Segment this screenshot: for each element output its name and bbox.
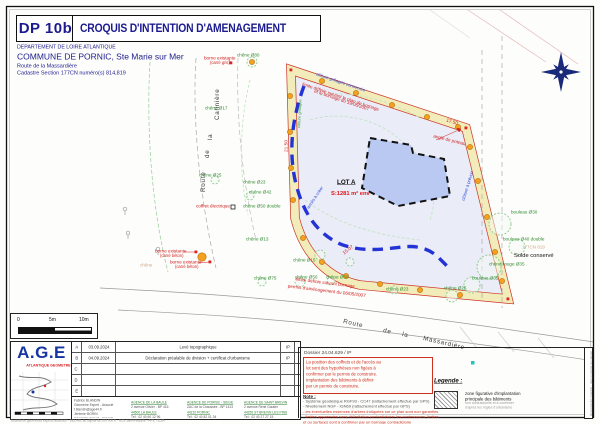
date-text: Dressé le : 04-09-2024 [590,22,600,32]
legend-zone-sub2: d'après les règles d'urbanisme [465,406,550,410]
electric-cabinet-symbol [231,205,235,209]
cadastre-line: Cadastre Section 177CN numéro(s) 814,819 [17,70,217,77]
scale-date-block: Echelle 1/250e Dressé le : 04-09-2024 [590,12,600,33]
department-line: DEPARTEMENT DE LOIRE ATLANTIQUE [17,44,217,51]
legend-hatch-swatch [434,391,458,409]
page-title: CROQUIS D'INTENTION D'AMENAGEMENT [80,23,286,35]
scale-text: Echelle 1/250e [590,12,600,22]
dossier-reference: Dossier 24.04.629 / IP [304,350,454,356]
legend-zone-text: zone figurative d'implantation principal… [465,391,550,410]
plan-sheet: chêne Ø80borne existante(carré gris)chên… [0,0,600,424]
contact-column: AGENCE DE SAINT BREVIN2 avenue René Gaut… [243,398,300,418]
small-tree-symbols [123,207,160,255]
street-line: Route de la Massardière [17,63,217,70]
legend: Legende : zone figurative d'implantation… [434,377,600,424]
revision-row: A03.09.2024Levé topographiqueIP [72,342,300,353]
company-subtitle: ATLANTIQUE GEOMETRES EXPERTS [26,363,57,368]
company-logo: A.G.E [11,343,72,363]
road-caliniere-edges [149,58,256,272]
revision-row: C [72,364,300,375]
contact-column: AGENCE DE PORNIC - SIEGEZAC de la Chauss… [186,398,243,418]
legal-line: Société de géomètres experts associés - … [11,419,311,423]
bottom-separator [298,347,592,348]
commune-line: COMMUNE DE PORNIC, Ste Marie sur Mer [17,52,217,63]
doc-title-box: CROQUIS D'INTENTION D'AMENAGEMENT [72,15,321,42]
legend-title: Legende : [434,377,600,384]
scale-bar-graphic [18,327,92,334]
graphic-scale-bar: 0 5m 10m [10,313,98,339]
revision-row: B04.09.2024Déclaration préalable de divi… [72,353,300,364]
red-notice-box: La position des coffrets et de l'accès a… [303,357,433,394]
doc-code: DP 10b [19,20,73,37]
scale-tick-10m: 10m [79,317,89,323]
scale-tick-0: 0 [17,317,20,323]
revision-row: E [72,386,300,396]
doc-code-box: DP 10b [16,15,75,42]
logo-map-graphic [11,372,68,418]
compass-rose-icon [541,52,581,92]
bottom-vertical-divider [298,347,299,418]
notice-lines: La position des coffrets et de l'accès a… [304,358,433,390]
revision-table: A03.09.2024Levé topographiqueIPB04.09.20… [71,341,301,420]
revision-rows: A03.09.2024Levé topographiqueIPB04.09.20… [72,342,300,396]
scale-tick-5m: 5m [49,317,56,323]
company-logo-block: A.G.E ATLANTIQUE GEOMETRES EXPERTS [10,341,73,420]
revision-row: D [72,375,300,386]
contact-columns: Fabrice BLANDINGéomètre Expert - Associé… [72,396,300,419]
faint-cadastre-lines [430,10,578,64]
contact-column: Fabrice BLANDINGéomètre Expert - Associé… [73,398,130,418]
project-address-block: DEPARTEMENT DE LOIRE ATLANTIQUE COMMUNE … [17,44,217,77]
contact-column: AGENCE DE LA BAULE2 avenue Olivier - BP … [130,398,187,418]
